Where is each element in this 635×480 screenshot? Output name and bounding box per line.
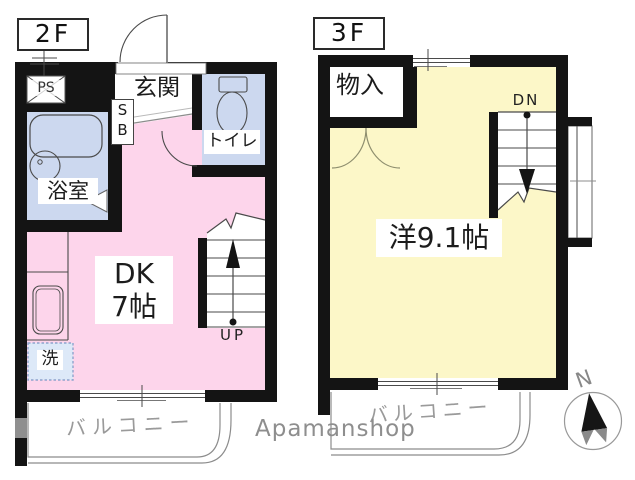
stairs2f-area bbox=[207, 213, 265, 328]
stairs-up-label: UP bbox=[213, 327, 253, 344]
room-label-toilet: トイレ bbox=[204, 130, 260, 154]
room-label-washer: 洗 bbox=[37, 350, 63, 370]
floorplan-linework bbox=[0, 0, 635, 480]
room-label-shoebox: S B bbox=[111, 99, 134, 145]
compass-icon bbox=[565, 391, 622, 449]
bay-window-icon bbox=[568, 126, 596, 238]
room-label-western: 洋9.1帖 bbox=[376, 219, 502, 257]
wall-window-mark bbox=[15, 418, 27, 438]
room-label-bath: 浴室 bbox=[38, 178, 98, 204]
room-label-dk: DK 7帖 bbox=[95, 256, 173, 324]
room-label-genkan: 玄関 bbox=[134, 75, 180, 101]
room-label-closet: 物入 bbox=[336, 72, 384, 100]
floor3-tag: 3F bbox=[313, 17, 385, 50]
stairs-down-label: DN bbox=[506, 92, 546, 109]
room-label-ps: PS bbox=[29, 80, 63, 96]
floorplan-image: 2F 3F PS 玄関 S B トイレ 浴室 DK 7帖 洗 UP バルコニー … bbox=[0, 0, 635, 480]
watermark-text: Apamanshop bbox=[255, 416, 416, 442]
floor2-tag: 2F bbox=[17, 18, 89, 51]
entrance-door-icon bbox=[116, 15, 206, 74]
